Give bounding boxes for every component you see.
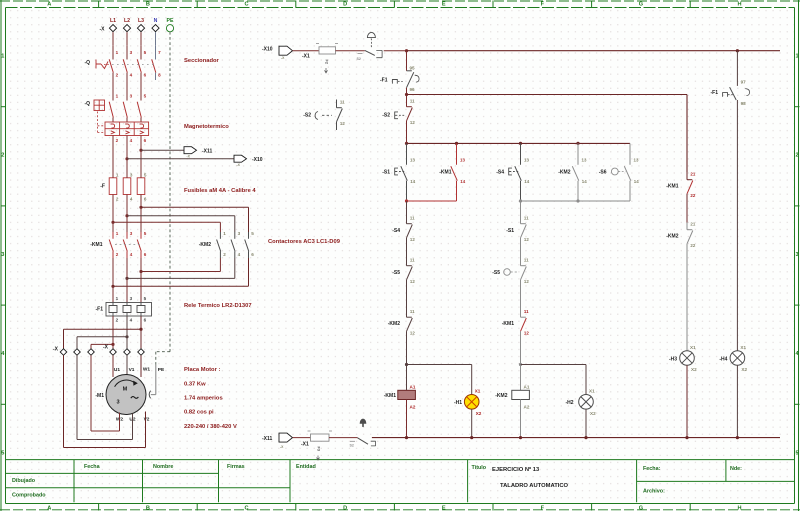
svg-text:-X1: -X1 <box>301 442 309 448</box>
svg-text:E: E <box>442 2 446 8</box>
svg-text:11: 11 <box>410 99 415 104</box>
svg-text:97: 97 <box>741 80 747 85</box>
svg-text:4: 4 <box>238 252 241 257</box>
svg-text:PE: PE <box>167 18 174 24</box>
svg-text:2: 2 <box>116 318 119 323</box>
svg-text:C: C <box>244 2 248 8</box>
svg-text:3: 3 <box>130 296 133 301</box>
svg-text:-KM2: -KM2 <box>558 170 570 176</box>
svg-text:Fecha: Fecha <box>84 464 101 470</box>
svg-text:11: 11 <box>410 258 415 263</box>
svg-text:3: 3 <box>130 231 133 236</box>
svg-text:M: M <box>123 387 128 393</box>
svg-text:14: 14 <box>582 179 587 184</box>
svg-text:H: H <box>737 505 741 511</box>
svg-text:D: D <box>343 2 347 8</box>
svg-text:-S5: -S5 <box>492 270 500 276</box>
svg-text:Dibujado: Dibujado <box>12 478 36 484</box>
svg-text:1: 1 <box>116 93 119 98</box>
svg-text:EJERCICIO Nº 13: EJERCICIO Nº 13 <box>492 467 540 473</box>
svg-text:X1: X1 <box>740 345 746 350</box>
svg-text:-KM2: -KM2 <box>199 242 211 248</box>
svg-text:A: A <box>47 505 51 511</box>
svg-text:-X11: -X11 <box>202 148 213 154</box>
svg-text:A: A <box>47 2 51 8</box>
svg-text:W1: W1 <box>143 367 151 373</box>
svg-text:B: B <box>146 2 150 8</box>
svg-text:12: 12 <box>524 279 529 284</box>
svg-text:-X: -X <box>103 345 109 351</box>
svg-text:-S6: -S6 <box>599 170 607 176</box>
svg-text:14: 14 <box>460 179 465 184</box>
svg-text:X1: X1 <box>589 389 595 394</box>
svg-text:96: 96 <box>410 87 416 92</box>
svg-text:-KM1: -KM1 <box>502 321 514 327</box>
svg-text:1: 1 <box>116 173 119 178</box>
svg-text:13: 13 <box>582 157 587 162</box>
svg-text:13: 13 <box>634 157 639 162</box>
svg-text:-KM2: -KM2 <box>388 321 400 327</box>
svg-text:3: 3 <box>130 93 133 98</box>
svg-text:-X10: -X10 <box>252 157 263 163</box>
svg-text:6: 6 <box>144 138 147 143</box>
svg-text:U1: U1 <box>114 367 120 373</box>
svg-text:14: 14 <box>634 179 639 184</box>
svg-text:-H1: -H1 <box>454 400 462 406</box>
svg-text:8: 8 <box>158 72 161 77</box>
svg-text:2: 2 <box>116 72 119 77</box>
svg-text:Fusibles aM 4A - Calibre 4: Fusibles aM 4A - Calibre 4 <box>184 188 256 194</box>
svg-text:X2: X2 <box>590 411 596 416</box>
svg-text:D: D <box>343 505 347 511</box>
svg-text:12: 12 <box>410 237 415 242</box>
svg-text:Placa Motor :: Placa Motor : <box>184 367 220 373</box>
svg-text:-F1: -F1 <box>711 90 719 96</box>
svg-text:V1: V1 <box>129 367 135 373</box>
svg-text:220-240 / 380-420 V: 220-240 / 380-420 V <box>184 424 237 430</box>
svg-text:-Q: -Q <box>84 60 90 66</box>
svg-text:N: N <box>154 18 158 24</box>
svg-text:X2: X2 <box>741 367 747 372</box>
svg-text:5: 5 <box>251 231 254 236</box>
svg-text:F3: F3 <box>317 447 321 451</box>
svg-text:14: 14 <box>524 179 529 184</box>
svg-text:-X10: -X10 <box>262 46 273 52</box>
svg-text:B: B <box>146 505 150 511</box>
svg-text:11: 11 <box>524 258 529 263</box>
svg-text:0.82 cos pi: 0.82 cos pi <box>184 410 214 416</box>
svg-text:Rele Termico LR2-D1307: Rele Termico LR2-D1307 <box>184 303 252 309</box>
svg-text:A2: A2 <box>524 404 530 409</box>
svg-text:2: 2 <box>116 197 119 202</box>
svg-text:4: 4 <box>130 138 133 143</box>
svg-text:Fecha:: Fecha: <box>643 466 661 472</box>
svg-text:12: 12 <box>410 330 415 335</box>
svg-text:5: 5 <box>795 450 798 456</box>
svg-text:2: 2 <box>116 138 119 143</box>
svg-text:-S1: -S1 <box>382 170 390 176</box>
svg-text:3: 3 <box>130 50 133 55</box>
svg-text:S2: S2 <box>357 57 361 61</box>
svg-text:21: 21 <box>690 222 695 227</box>
svg-text:A2: A2 <box>410 404 416 409</box>
svg-text:-S4: -S4 <box>392 228 400 234</box>
svg-text:Titulo: Titulo <box>472 465 487 471</box>
svg-text:Entidad: Entidad <box>296 464 316 470</box>
svg-text:-Q: -Q <box>84 101 90 107</box>
svg-text:11: 11 <box>524 309 529 314</box>
svg-text:12: 12 <box>410 120 415 125</box>
svg-text:1: 1 <box>1 54 4 60</box>
svg-text:5: 5 <box>144 93 147 98</box>
svg-text:F: F <box>541 2 545 8</box>
svg-text:X1: X1 <box>475 389 481 394</box>
svg-text:L1: L1 <box>110 18 116 24</box>
svg-text:1: 1 <box>223 231 226 236</box>
svg-text:6: 6 <box>251 252 254 257</box>
svg-text:4: 4 <box>130 197 133 202</box>
svg-text:12: 12 <box>524 330 529 335</box>
svg-text:5: 5 <box>1 450 4 456</box>
svg-text:11: 11 <box>410 309 415 314</box>
svg-text:0.37 Kw: 0.37 Kw <box>184 381 206 387</box>
svg-text:-S2: -S2 <box>303 113 311 119</box>
svg-text:3: 3 <box>795 252 798 258</box>
svg-text:H: H <box>737 2 741 8</box>
svg-text:13: 13 <box>524 157 529 162</box>
svg-text:-X: -X <box>100 27 106 33</box>
svg-text:F2: F2 <box>325 60 329 64</box>
svg-text:X2: X2 <box>476 411 482 416</box>
svg-text:12: 12 <box>410 279 415 284</box>
svg-text:S2: S2 <box>350 444 354 448</box>
svg-text:-S2: -S2 <box>382 113 390 119</box>
svg-text:4: 4 <box>130 318 133 323</box>
svg-text:2: 2 <box>795 153 798 159</box>
svg-text:-KM1: -KM1 <box>439 170 451 176</box>
svg-text:7: 7 <box>158 50 161 55</box>
svg-text:4: 4 <box>130 252 133 257</box>
svg-text:F: F <box>541 505 545 511</box>
svg-text:Comprobado: Comprobado <box>12 493 46 499</box>
svg-text:Seccionador: Seccionador <box>184 58 220 64</box>
svg-text:-KM1: -KM1 <box>384 393 396 399</box>
svg-text:Archivo:: Archivo: <box>643 489 665 495</box>
svg-text:-S5: -S5 <box>392 270 400 276</box>
svg-text:-F1: -F1 <box>96 307 104 313</box>
svg-text:1: 1 <box>116 231 119 236</box>
svg-text:11: 11 <box>524 216 529 221</box>
svg-text:-H3: -H3 <box>669 357 677 363</box>
svg-text:2: 2 <box>116 252 119 257</box>
svg-text:PE: PE <box>158 367 165 373</box>
svg-text:G: G <box>639 505 643 511</box>
svg-text:-S1: -S1 <box>506 228 514 234</box>
svg-text:13: 13 <box>410 157 415 162</box>
svg-text:6: 6 <box>144 72 147 77</box>
svg-text:-S4: -S4 <box>496 170 504 176</box>
svg-text:3: 3 <box>130 173 133 178</box>
svg-text:X1: X1 <box>690 345 696 350</box>
svg-text:1: 1 <box>116 50 119 55</box>
svg-text:Firmas: Firmas <box>227 464 245 470</box>
svg-text:5: 5 <box>144 50 147 55</box>
svg-text:3: 3 <box>238 231 241 236</box>
svg-text:4: 4 <box>130 72 133 77</box>
svg-text:6: 6 <box>144 197 147 202</box>
svg-text:98: 98 <box>741 101 747 106</box>
svg-text:1: 1 <box>116 296 119 301</box>
svg-text:Nombre: Nombre <box>153 464 173 470</box>
svg-text:5: 5 <box>144 173 147 178</box>
svg-text:14: 14 <box>410 179 415 184</box>
svg-text:A1: A1 <box>524 384 530 389</box>
svg-text:-KM2: -KM2 <box>495 393 507 399</box>
svg-text:-X: -X <box>53 347 59 353</box>
svg-text:Nde:: Nde: <box>730 466 742 472</box>
svg-text:12: 12 <box>524 237 529 242</box>
svg-text:Contactores AC3 LC1-D09: Contactores AC3 LC1-D09 <box>268 239 341 245</box>
svg-text:-H2: -H2 <box>565 400 573 406</box>
svg-text:TALADRO AUTOMATICO: TALADRO AUTOMATICO <box>500 483 569 489</box>
svg-text:Magnetotermico: Magnetotermico <box>184 124 229 130</box>
svg-text:C: C <box>244 505 248 511</box>
svg-text:-F: -F <box>100 184 105 190</box>
svg-text:13: 13 <box>460 157 465 162</box>
svg-text:22: 22 <box>690 243 695 248</box>
svg-text:L2: L2 <box>124 18 130 24</box>
svg-text:6: 6 <box>144 318 147 323</box>
svg-text:V2: V2 <box>144 416 150 422</box>
svg-text:X2: X2 <box>691 367 697 372</box>
svg-text:95: 95 <box>410 66 416 71</box>
svg-text:-X11: -X11 <box>262 436 273 442</box>
svg-text:12: 12 <box>340 121 345 126</box>
svg-text:5: 5 <box>144 296 147 301</box>
svg-text:11: 11 <box>410 216 415 221</box>
svg-text:3: 3 <box>1 252 4 258</box>
svg-text:E: E <box>442 505 446 511</box>
svg-text:11: 11 <box>340 100 345 105</box>
svg-text:-X1: -X1 <box>302 54 310 60</box>
svg-text:21: 21 <box>690 172 695 177</box>
svg-text:-F1: -F1 <box>380 77 388 83</box>
svg-text:-KM2: -KM2 <box>666 234 678 240</box>
svg-text:5: 5 <box>144 231 147 236</box>
svg-text:3: 3 <box>116 399 119 405</box>
svg-text:-H4: -H4 <box>719 357 727 363</box>
svg-text:L3: L3 <box>138 18 144 24</box>
svg-text:-KM1: -KM1 <box>90 242 102 248</box>
svg-text:1: 1 <box>795 54 798 60</box>
svg-text:-M1: -M1 <box>95 393 104 399</box>
svg-text:22: 22 <box>690 193 695 198</box>
svg-text:G: G <box>639 2 643 8</box>
svg-text:6: 6 <box>144 252 147 257</box>
svg-text:2: 2 <box>223 252 226 257</box>
svg-text:A1: A1 <box>410 384 416 389</box>
svg-text:1.74 amperios: 1.74 amperios <box>184 396 223 402</box>
svg-text:2: 2 <box>1 153 4 159</box>
svg-text:-KM1: -KM1 <box>666 184 678 190</box>
